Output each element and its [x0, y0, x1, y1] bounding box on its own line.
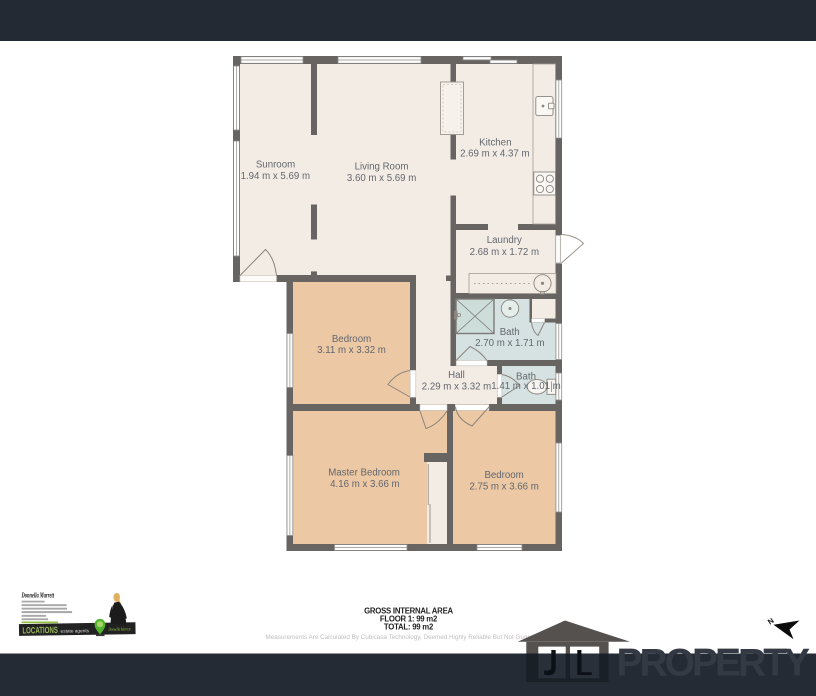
svg-text:Measurements Are Calculated By: Measurements Are Calculated By Cubicasa … [265, 634, 550, 641]
svg-text:1.94 m x 5.69 m: 1.94 m x 5.69 m [241, 171, 310, 182]
svg-text:TOTAL: 99 m2: TOTAL: 99 m2 [384, 623, 434, 632]
svg-text:Donnella Marrett: Donnella Marrett [108, 626, 131, 631]
svg-text:Donnella Marrett: Donnella Marrett [21, 592, 55, 600]
svg-text:estate agents: estate agents [60, 628, 89, 633]
svg-text:LOCATIONS: LOCATIONS [22, 625, 58, 636]
svg-text:Master Bedroom: Master Bedroom [328, 467, 400, 478]
svg-text:3.11 m x 3.32 m: 3.11 m x 3.32 m [317, 345, 386, 356]
svg-text:2.70 m x 1.71 m: 2.70 m x 1.71 m [475, 338, 544, 349]
svg-text:1.41 m x 1.01 m: 1.41 m x 1.01 m [491, 381, 560, 392]
svg-text:3.60 m x 5.69 m: 3.60 m x 5.69 m [347, 173, 416, 184]
svg-text:Bath: Bath [500, 327, 520, 338]
svg-text:Bedroom: Bedroom [484, 470, 523, 481]
svg-text:Laundry: Laundry [487, 235, 522, 246]
svg-text:Sunroom: Sunroom [256, 160, 295, 171]
svg-text:2.69 m x 4.37 m: 2.69 m x 4.37 m [460, 149, 529, 160]
svg-text:2.68 m x 1.72 m: 2.68 m x 1.72 m [470, 247, 539, 258]
svg-text:Living Room: Living Room [355, 162, 409, 173]
svg-text:2.75 m x 3.66 m: 2.75 m x 3.66 m [469, 482, 538, 493]
svg-text:PROPERTY: PROPERTY [617, 642, 811, 685]
svg-text:4.16 m x 3.66 m: 4.16 m x 3.66 m [330, 479, 399, 490]
svg-text:Kitchen: Kitchen [479, 138, 511, 149]
svg-text:Hall: Hall [448, 370, 465, 381]
svg-text:Bedroom: Bedroom [332, 334, 371, 345]
svg-text:2.29 m x 3.32 m: 2.29 m x 3.32 m [422, 382, 491, 393]
